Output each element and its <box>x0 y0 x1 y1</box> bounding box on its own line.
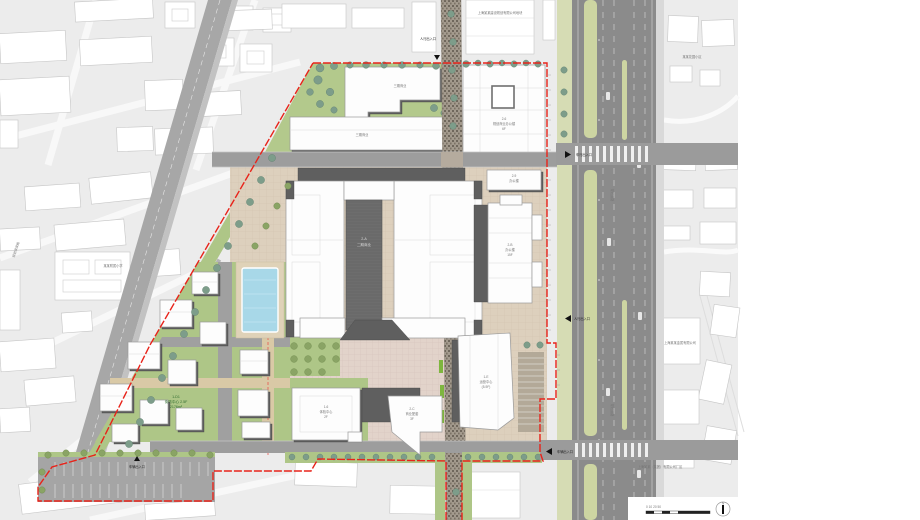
svg-text:办公楼: 办公楼 <box>509 178 519 183</box>
map-furniture: 0 10 20 50 N <box>628 497 738 520</box>
villa-building <box>168 360 198 386</box>
villa-building <box>242 422 272 440</box>
surface-parking-lot <box>38 450 215 502</box>
svg-text:1-D1: 1-D1 <box>172 395 180 399</box>
svg-text:2-B: 2-B <box>508 243 513 247</box>
svg-text:2-C: 2-C <box>409 407 415 411</box>
complex-courtyard <box>346 200 382 330</box>
svg-text:车行出入口: 车行出入口 <box>576 152 592 157</box>
svg-text:街坊中心 2.5F: 街坊中心 2.5F <box>165 399 188 404</box>
svg-text:商业配套: 商业配套 <box>406 411 420 416</box>
building-2-9: 2-9 办公楼 <box>487 170 543 192</box>
svg-text:三期商业: 三期商业 <box>356 132 369 137</box>
svg-text:规划商业办公楼: 规划商业办公楼 <box>493 121 516 126</box>
villa-building <box>200 322 228 346</box>
svg-text:办公楼: 办公楼 <box>505 247 515 252</box>
arterial-road-name: 规划道路 <box>610 189 615 203</box>
building-1-6: 1-6 体验中心 2F <box>292 388 362 442</box>
complex-west-block <box>286 181 344 337</box>
building-2-6: 2-6 规划商业办公楼 6F <box>463 60 545 158</box>
villa-path-horizontal <box>110 378 290 388</box>
svg-text:三期商业: 三期商业 <box>394 83 407 88</box>
svg-text:1-E: 1-E <box>484 375 489 379</box>
complex-east-block <box>394 181 482 337</box>
svg-text:车辆出入口: 车辆出入口 <box>129 464 145 469</box>
building-2-b: 2-B 办公楼 15F <box>474 195 542 303</box>
phase3-building-b: 三期商业 <box>290 117 450 152</box>
svg-text:2176m²: 2176m² <box>170 405 183 409</box>
svg-text:0 10 20 50: 0 10 20 50 <box>646 505 661 509</box>
north-internal-road <box>212 152 563 167</box>
north-needle-icon <box>722 505 724 514</box>
building-1-e: 1-E 运营中心 (5-9F) <box>452 333 514 430</box>
svg-text:2-6: 2-6 <box>502 117 507 121</box>
svg-text:人行出入口: 人行出入口 <box>574 316 590 321</box>
north-arrow: N <box>716 502 730 517</box>
swimming-pool <box>236 262 284 338</box>
svg-text:体验中心: 体验中心 <box>320 409 334 414</box>
villa-building <box>176 408 204 432</box>
right-context-label-a: 某某花园小区 <box>682 54 702 59</box>
master-plan-drawing: 1-D1 街坊中心 2.5F 2176m² 三期商业 三期商业 <box>0 0 920 520</box>
svg-text:2-9: 2-9 <box>512 174 517 178</box>
blank-margin <box>738 0 920 520</box>
building-2-6-courtyard <box>492 86 514 108</box>
right-context-label-b: 上海某某金属有限公司 <box>664 340 696 345</box>
svg-text:1-6: 1-6 <box>324 405 329 409</box>
svg-text:车辆出入口: 车辆出入口 <box>557 449 573 454</box>
svg-text:人行出入口: 人行出入口 <box>420 36 436 41</box>
villa-building <box>112 424 140 444</box>
site-plan-canvas: 1-D1 街坊中心 2.5F 2176m² 三期商业 三期商业 <box>0 0 920 520</box>
arterial-road-name-2: 规划道路 <box>610 404 615 418</box>
svg-text:(5-9F): (5-9F) <box>482 385 491 389</box>
svg-text:6F: 6F <box>502 127 506 131</box>
svg-text:3F: 3F <box>410 417 414 421</box>
villa-building <box>238 390 270 418</box>
svg-text:2F: 2F <box>324 415 328 419</box>
svg-text:2-A: 2-A <box>361 237 367 241</box>
villa-building <box>160 300 194 329</box>
svg-text:运营中心: 运营中心 <box>480 379 494 384</box>
top-note-label: 上海某某建设规划有限公司地块 <box>478 10 523 15</box>
south-internal-road <box>150 441 565 453</box>
right-context-label-c: 上海某某（集团）有限公司厂区 <box>638 464 683 469</box>
svg-text:二期商业: 二期商业 <box>357 242 372 247</box>
villa-building <box>240 350 270 376</box>
svg-text:15F: 15F <box>507 253 513 257</box>
school-label: 某某附属小学 <box>103 263 122 268</box>
complex-north-bar <box>298 168 465 181</box>
